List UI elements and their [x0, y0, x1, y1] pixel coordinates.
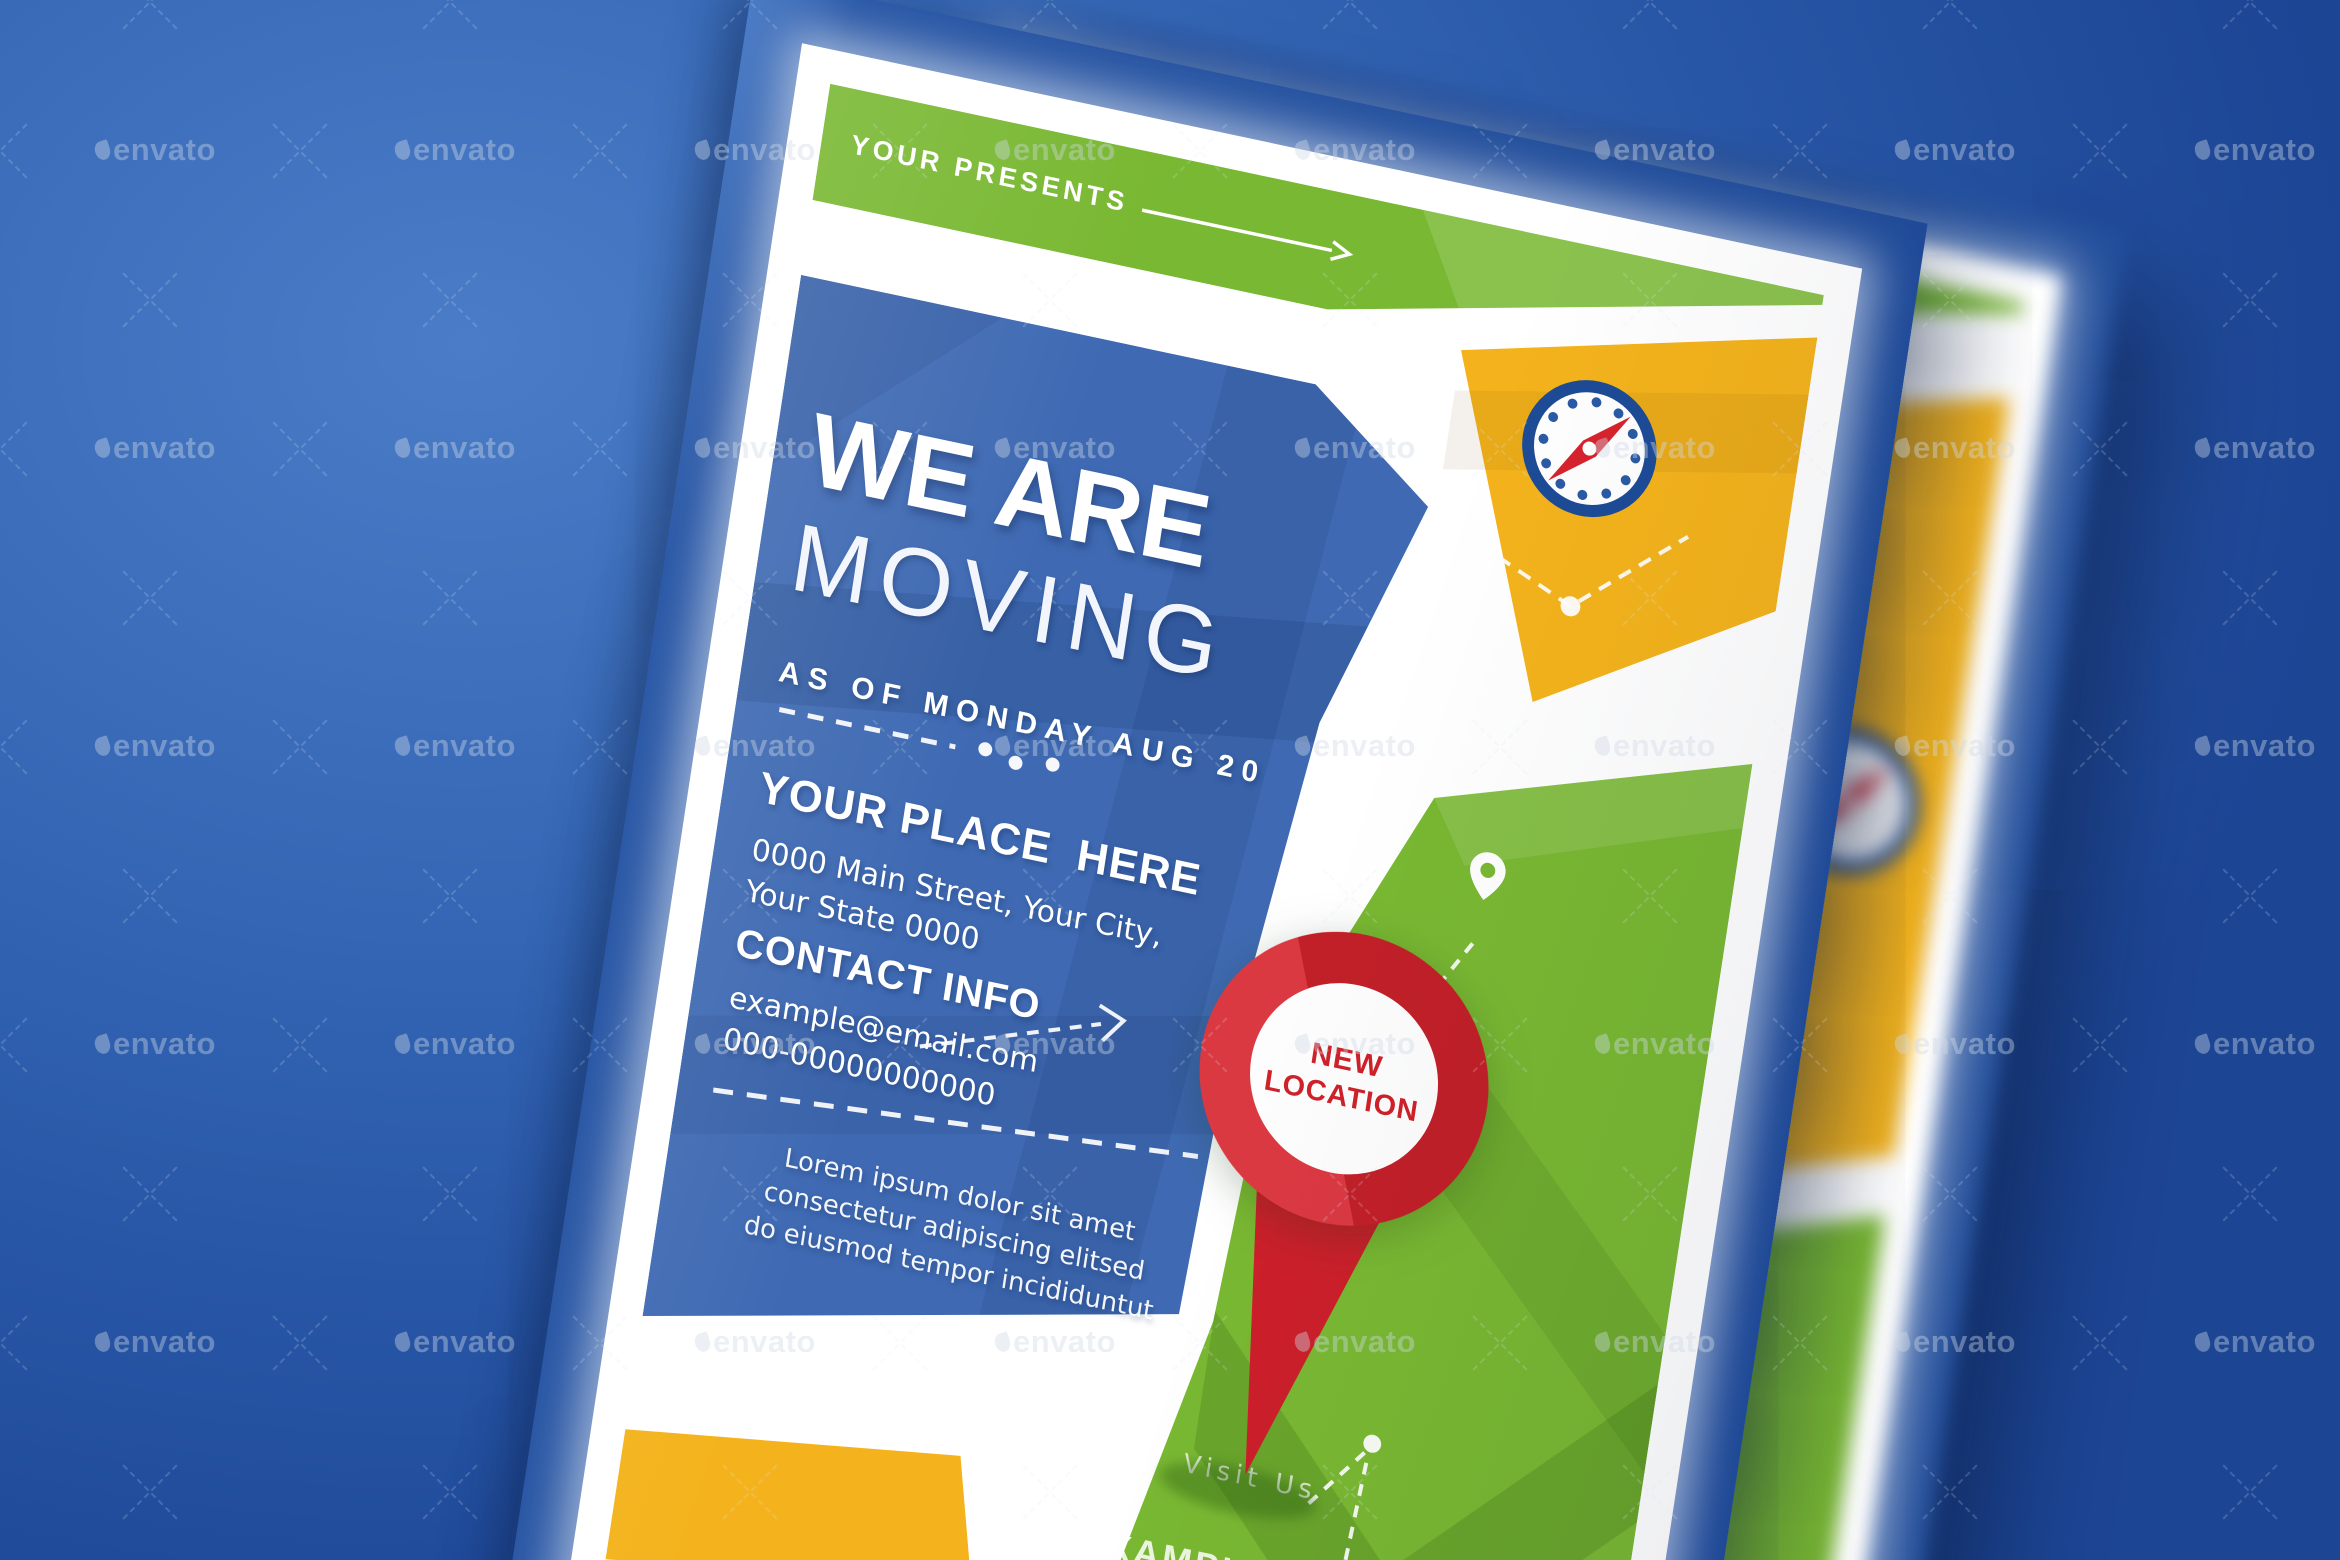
watermark-text: envato [113, 430, 216, 466]
hatch-cross-mark [1918, 0, 1982, 33]
watermark-text: envato [2213, 1324, 2316, 1360]
envato-watermark: envato [2195, 1324, 2316, 1360]
hatch-cross-mark [2218, 0, 2282, 33]
hatch-cross-mark [0, 714, 32, 778]
watermark-text: envato [2213, 1026, 2316, 1062]
hatch-cross-mark [2068, 1310, 2132, 1374]
hatch-cross-mark [118, 1459, 182, 1523]
hatch-cross-mark [118, 863, 182, 927]
envato-leaf-icon [2192, 735, 2212, 758]
watermark-text: envato [1913, 132, 2016, 168]
hatch-cross-mark [118, 1161, 182, 1225]
envato-leaf-icon [1892, 139, 1912, 162]
envato-watermark: envato [95, 728, 216, 764]
watermark-text: envato [2213, 430, 2316, 466]
hatch-cross-mark [418, 1459, 482, 1523]
envato-leaf-icon [2192, 1331, 2212, 1354]
hatch-cross-mark [2068, 1012, 2132, 1076]
hatch-cross-mark [2068, 118, 2132, 182]
moving-flyer: YOUR PRESENTS [469, 0, 1928, 1560]
compass-icon [1510, 365, 1668, 532]
watermark-text: envato [113, 1324, 216, 1360]
envato-watermark: envato [395, 1026, 516, 1062]
envato-watermark: envato [2195, 132, 2316, 168]
envato-watermark: envato [95, 132, 216, 168]
hatch-cross-mark [418, 565, 482, 629]
hatch-cross-mark [2218, 565, 2282, 629]
envato-watermark: envato [395, 1324, 516, 1360]
hatch-cross-mark [268, 1310, 332, 1374]
hatch-cross-mark [118, 565, 182, 629]
watermark-text: envato [413, 1026, 516, 1062]
envato-leaf-icon [2192, 1033, 2212, 1056]
hatch-cross-mark [1318, 0, 1382, 33]
hatch-cross-mark [2068, 714, 2132, 778]
envato-watermark: envato [95, 430, 216, 466]
watermark-text: envato [113, 728, 216, 764]
watermark-text: envato [113, 1026, 216, 1062]
flyer-paper: YOUR PRESENTS [534, 43, 1862, 1560]
hatch-cross-mark [1618, 0, 1682, 33]
hatch-cross-mark [0, 1012, 32, 1076]
envato-leaf-icon [92, 139, 112, 162]
envato-leaf-icon [692, 139, 712, 162]
envato-leaf-icon [392, 437, 412, 460]
hatch-cross-mark [418, 0, 482, 33]
hatch-cross-mark [568, 416, 632, 480]
hatch-cross-mark [2218, 1459, 2282, 1523]
hatch-cross-mark [568, 118, 632, 182]
envato-leaf-icon [2192, 437, 2212, 460]
watermark-text: envato [113, 132, 216, 168]
envato-leaf-icon [392, 735, 412, 758]
hatch-cross-mark [2218, 1161, 2282, 1225]
watermark-text: envato [2213, 728, 2316, 764]
hatch-cross-mark [2218, 863, 2282, 927]
envato-leaf-icon [92, 1331, 112, 1354]
watermark-text: envato [413, 132, 516, 168]
envato-watermark: envato [2195, 728, 2316, 764]
envato-leaf-icon [92, 1033, 112, 1056]
hatch-cross-mark [118, 0, 182, 33]
hatch-cross-mark [0, 416, 32, 480]
hatch-cross-mark [418, 863, 482, 927]
hatch-cross-mark [0, 118, 32, 182]
envato-watermark: envato [2195, 430, 2316, 466]
hatch-cross-mark [268, 714, 332, 778]
envato-watermark: envato [95, 1026, 216, 1062]
envato-watermark: envato [1895, 132, 2016, 168]
hatch-cross-mark [568, 714, 632, 778]
hatch-cross-mark [268, 416, 332, 480]
hatch-cross-mark [0, 1310, 32, 1374]
envato-watermark: envato [2195, 1026, 2316, 1062]
envato-watermark: envato [95, 1324, 216, 1360]
hatch-cross-mark [418, 267, 482, 331]
hatch-cross-mark [118, 267, 182, 331]
envato-watermark: envato [395, 728, 516, 764]
envato-leaf-icon [2192, 139, 2212, 162]
watermark-text: envato [413, 430, 516, 466]
envato-leaf-icon [92, 735, 112, 758]
hatch-cross-mark [268, 118, 332, 182]
watermark-text: envato [2213, 132, 2316, 168]
watermark-text: envato [413, 1324, 516, 1360]
envato-leaf-icon [392, 1033, 412, 1056]
map-pin-icon [1466, 849, 1508, 904]
envato-leaf-icon [392, 1331, 412, 1354]
mockup-stage: YOUR PRESENTS [0, 0, 2340, 1560]
envato-leaf-icon [92, 437, 112, 460]
envato-leaf-icon [392, 139, 412, 162]
envato-watermark: envato [395, 132, 516, 168]
watermark-text: envato [413, 728, 516, 764]
hatch-cross-mark [2218, 267, 2282, 331]
hatch-cross-mark [268, 1012, 332, 1076]
envato-watermark: envato [395, 430, 516, 466]
hatch-cross-mark [418, 1161, 482, 1225]
